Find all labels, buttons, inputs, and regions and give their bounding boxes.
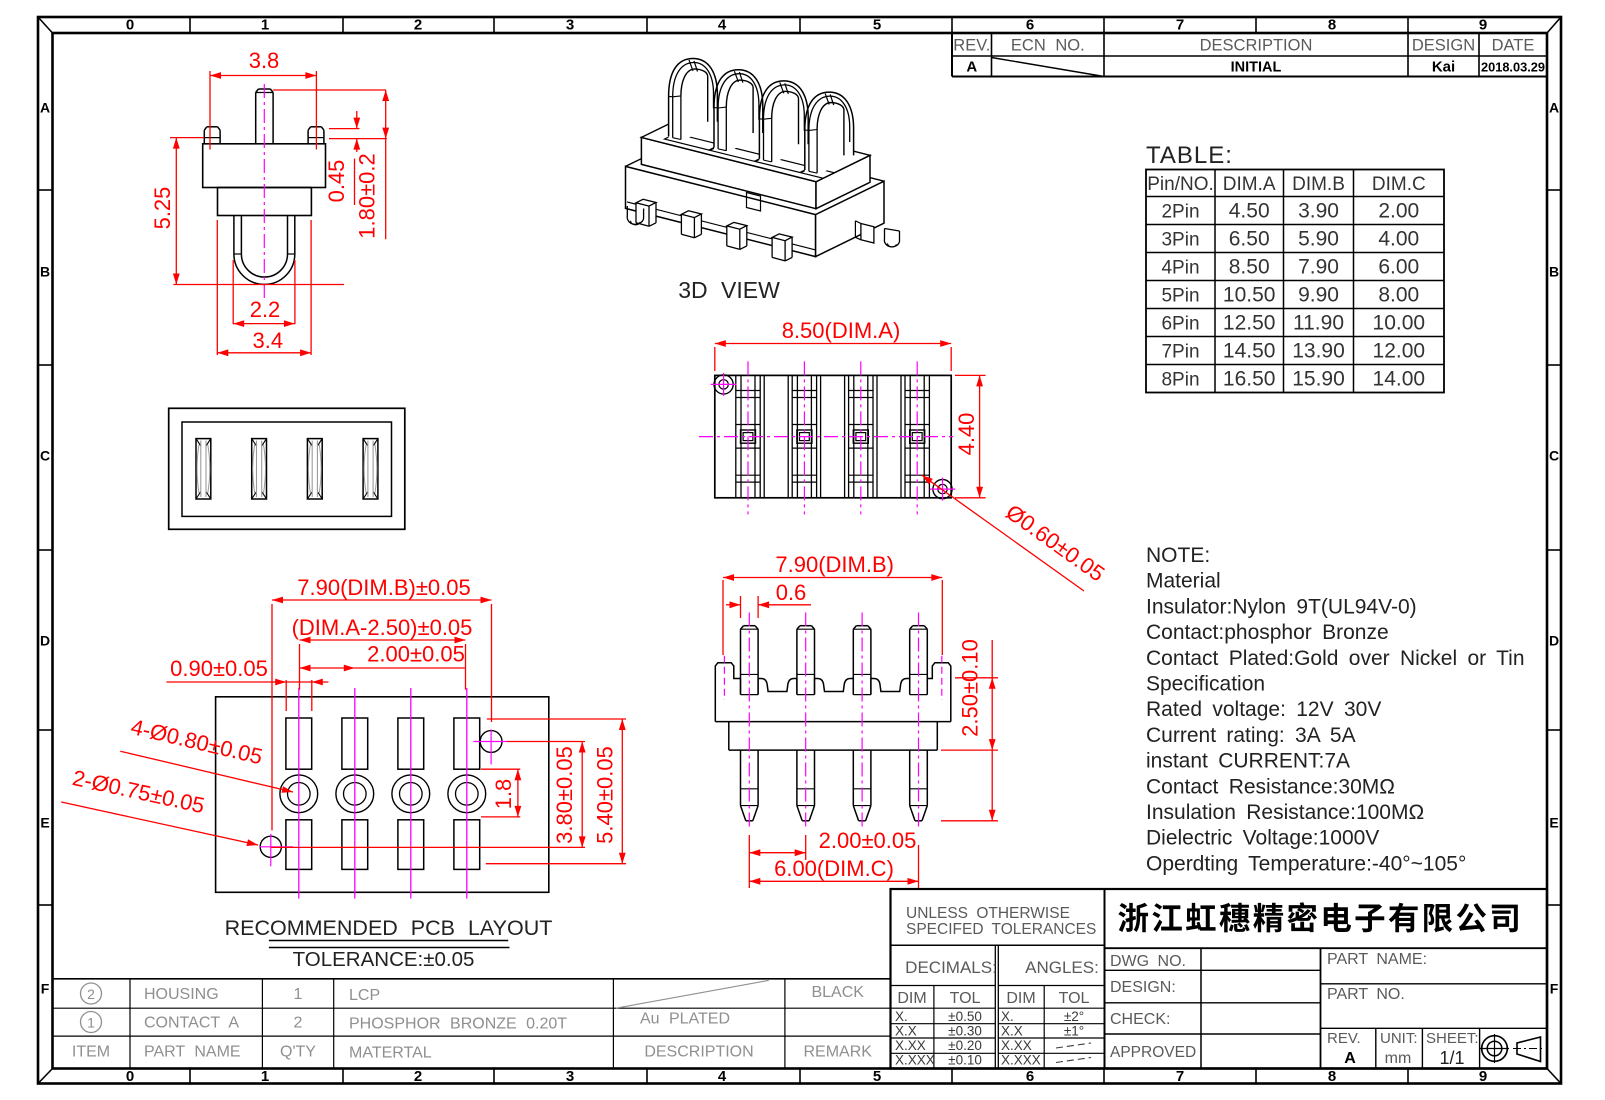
- svg-text:Current rating: 3A 5A: Current rating: 3A 5A: [1146, 724, 1356, 747]
- svg-text:14.50: 14.50: [1223, 340, 1276, 363]
- svg-text:8: 8: [1328, 17, 1336, 34]
- svg-text:SHEET:: SHEET:: [1426, 1030, 1479, 1047]
- svg-text:±0.30: ±0.30: [948, 1024, 982, 1039]
- svg-text:mm: mm: [1385, 1050, 1412, 1067]
- svg-text:TABLE:: TABLE:: [1146, 142, 1233, 169]
- svg-text:0: 0: [126, 17, 134, 34]
- svg-text:DECIMALS:: DECIMALS:: [905, 958, 997, 977]
- svg-text:3D VIEW: 3D VIEW: [678, 277, 780, 303]
- svg-text:PART NAME:: PART NAME:: [1327, 951, 1427, 968]
- svg-text:DIM.C: DIM.C: [1372, 174, 1426, 195]
- svg-text:8.50(DIM.A): 8.50(DIM.A): [782, 318, 901, 343]
- svg-text:Specification: Specification: [1146, 673, 1265, 696]
- svg-text:Kai: Kai: [1432, 59, 1455, 76]
- svg-text:C: C: [1549, 448, 1559, 464]
- svg-text:16.50: 16.50: [1223, 368, 1276, 391]
- svg-text:5.25: 5.25: [150, 187, 175, 230]
- svg-text:10.00: 10.00: [1373, 312, 1426, 335]
- svg-text:±0.20: ±0.20: [948, 1038, 982, 1053]
- svg-text:ECN NO.: ECN NO.: [1011, 37, 1085, 55]
- svg-text:5: 5: [873, 1068, 881, 1085]
- svg-text:DIM.A: DIM.A: [1223, 174, 1276, 195]
- svg-text:9: 9: [1479, 1068, 1487, 1085]
- svg-text:instant CURRENT:7A: instant CURRENT:7A: [1146, 750, 1350, 773]
- svg-text:7.90: 7.90: [1298, 256, 1339, 279]
- svg-text:2: 2: [87, 986, 95, 1002]
- svg-text:4: 4: [718, 1068, 727, 1085]
- svg-text:Rated voltage: 12V 30V: Rated voltage: 12V 30V: [1146, 698, 1381, 721]
- svg-text:0: 0: [126, 1068, 134, 1085]
- svg-text:1/1: 1/1: [1439, 1048, 1464, 1068]
- svg-text:2: 2: [414, 17, 422, 34]
- svg-text:15.90: 15.90: [1292, 368, 1345, 391]
- svg-text:F: F: [41, 981, 50, 997]
- svg-text:DIM: DIM: [897, 990, 926, 1007]
- svg-text:1.8: 1.8: [491, 779, 516, 810]
- svg-text:5.40±0.05: 5.40±0.05: [593, 746, 618, 844]
- svg-text:NOTE:: NOTE:: [1146, 544, 1210, 567]
- svg-text:X.X: X.X: [1001, 1024, 1023, 1039]
- svg-text:REMARK: REMARK: [803, 1044, 872, 1061]
- svg-text:BLACK: BLACK: [811, 984, 864, 1001]
- svg-text:8: 8: [1328, 1068, 1336, 1085]
- svg-text:±0.50: ±0.50: [948, 1009, 982, 1024]
- svg-text:B: B: [1549, 264, 1559, 280]
- svg-text:7: 7: [1176, 1068, 1184, 1085]
- svg-text:X.XXX: X.XXX: [895, 1053, 935, 1068]
- svg-text:1: 1: [294, 986, 303, 1003]
- svg-text:B: B: [40, 264, 50, 280]
- svg-text:INITIAL: INITIAL: [1231, 60, 1282, 76]
- svg-text:DIM.B: DIM.B: [1292, 174, 1345, 195]
- svg-text:X.X: X.X: [895, 1024, 917, 1039]
- svg-text:X.XX: X.XX: [895, 1038, 926, 1053]
- svg-text:12.50: 12.50: [1223, 312, 1276, 335]
- svg-text:Contact:phosphor Bronze: Contact:phosphor Bronze: [1146, 621, 1389, 644]
- svg-text:9: 9: [1479, 17, 1487, 34]
- svg-text:2.2: 2.2: [250, 297, 281, 322]
- svg-text:PART NO.: PART NO.: [1327, 986, 1405, 1003]
- svg-text:11.90: 11.90: [1293, 312, 1344, 335]
- svg-text:Au PLATED: Au PLATED: [640, 1011, 730, 1028]
- svg-text:PHOSPHOR BRONZE 0.20T: PHOSPHOR BRONZE 0.20T: [349, 1016, 567, 1033]
- svg-text:PART NAME: PART NAME: [144, 1044, 241, 1061]
- svg-text:TOL: TOL: [950, 990, 981, 1007]
- svg-text:SPECIFED TOLERANCES: SPECIFED TOLERANCES: [906, 921, 1096, 938]
- svg-text:DESCRIPTION: DESCRIPTION: [644, 1044, 753, 1061]
- svg-text:Dielectric Voltage:1000V: Dielectric Voltage:1000V: [1146, 827, 1379, 850]
- svg-text:(DIM.A-2.50)±0.05: (DIM.A-2.50)±0.05: [292, 615, 473, 640]
- svg-text:3.4: 3.4: [253, 328, 284, 353]
- svg-text:9.90: 9.90: [1298, 284, 1339, 307]
- svg-text:Operdting Temperature:-40°~10: Operdting Temperature:-40°~105°: [1146, 852, 1466, 875]
- svg-text:0.45: 0.45: [324, 160, 349, 203]
- svg-text:REV.: REV.: [953, 37, 990, 55]
- svg-text:X.: X.: [895, 1009, 908, 1024]
- svg-text:TOL: TOL: [1059, 990, 1090, 1007]
- svg-text:Insulator:Nylon 9T(UL94V-0): Insulator:Nylon 9T(UL94V-0): [1146, 595, 1417, 618]
- svg-text:CONTACT A: CONTACT A: [144, 1015, 239, 1032]
- svg-text:DESCRIPTION: DESCRIPTION: [1200, 37, 1313, 55]
- svg-text:Pin/NO.: Pin/NO.: [1147, 174, 1214, 195]
- svg-text:APPROVED: APPROVED: [1110, 1044, 1196, 1061]
- svg-text:2.00: 2.00: [1378, 200, 1419, 223]
- svg-text:3: 3: [566, 1068, 574, 1085]
- svg-text:HOUSING: HOUSING: [144, 986, 219, 1003]
- svg-text:1: 1: [261, 17, 269, 34]
- svg-text:D: D: [40, 633, 50, 649]
- svg-text:2018.03.29: 2018.03.29: [1481, 60, 1545, 75]
- svg-text:Contact Plated:Gold over Ni: Contact Plated:Gold over Nickel or Tin: [1146, 647, 1525, 670]
- svg-text:10.50: 10.50: [1223, 284, 1276, 307]
- svg-text:Insulation Resistance:100MΩ: Insulation Resistance:100MΩ: [1146, 801, 1424, 824]
- svg-text:Q'TY: Q'TY: [280, 1044, 316, 1061]
- svg-text:DIM: DIM: [1006, 990, 1035, 1007]
- svg-text:5: 5: [873, 17, 881, 34]
- svg-text:8.50: 8.50: [1229, 256, 1270, 279]
- svg-text:3: 3: [566, 17, 574, 34]
- svg-text:4.00: 4.00: [1378, 228, 1419, 251]
- svg-text:X.XXX: X.XXX: [1001, 1053, 1041, 1068]
- svg-text:5Pin: 5Pin: [1161, 286, 1199, 307]
- svg-text:4Pin: 4Pin: [1161, 258, 1199, 279]
- svg-text:E: E: [40, 815, 49, 831]
- svg-text:A: A: [966, 59, 977, 76]
- svg-text:3.90: 3.90: [1298, 200, 1339, 223]
- svg-text:6.00(DIM.C): 6.00(DIM.C): [774, 856, 894, 881]
- svg-text:2: 2: [414, 1068, 422, 1085]
- svg-text:E: E: [1549, 815, 1558, 831]
- svg-text:X.: X.: [1001, 1009, 1014, 1024]
- svg-text:D: D: [1549, 633, 1559, 649]
- svg-text:DESIGN: DESIGN: [1412, 37, 1475, 55]
- svg-text:1.80±0.2: 1.80±0.2: [355, 153, 380, 238]
- svg-text:2Pin: 2Pin: [1161, 202, 1199, 223]
- svg-text:A: A: [1549, 100, 1559, 116]
- svg-text:A: A: [40, 100, 50, 116]
- svg-text:7.90(DIM.B)±0.05: 7.90(DIM.B)±0.05: [297, 575, 470, 600]
- svg-text:TOLERANCE:±0.05: TOLERANCE:±0.05: [293, 948, 475, 971]
- svg-text:2: 2: [294, 1015, 303, 1032]
- svg-text:7Pin: 7Pin: [1161, 342, 1199, 363]
- svg-text:5.90: 5.90: [1298, 228, 1339, 251]
- svg-text:LCP: LCP: [349, 987, 380, 1004]
- svg-text:3.80±0.05: 3.80±0.05: [552, 746, 577, 844]
- svg-text:2.00±0.05: 2.00±0.05: [819, 828, 917, 853]
- svg-text:4: 4: [718, 17, 727, 34]
- svg-text:UNLESS OTHERWISE: UNLESS OTHERWISE: [906, 905, 1070, 922]
- svg-text:6: 6: [1026, 17, 1034, 34]
- svg-text:6: 6: [1026, 1068, 1034, 1085]
- svg-text:4.40: 4.40: [954, 413, 979, 456]
- svg-text:8.00: 8.00: [1378, 284, 1419, 307]
- svg-text:0.90±0.05: 0.90±0.05: [170, 656, 268, 681]
- svg-text:4.50: 4.50: [1229, 200, 1270, 223]
- svg-text:3.8: 3.8: [249, 48, 280, 73]
- svg-text:0.6: 0.6: [776, 580, 807, 605]
- svg-text:DESIGN:: DESIGN:: [1110, 979, 1176, 996]
- svg-text:3Pin: 3Pin: [1161, 230, 1199, 251]
- svg-text:2.50±0.10: 2.50±0.10: [958, 639, 983, 737]
- svg-text:MATERTAL: MATERTAL: [349, 1045, 432, 1062]
- svg-text:±0.10: ±0.10: [948, 1053, 982, 1068]
- svg-text:CHECK:: CHECK:: [1110, 1011, 1170, 1028]
- svg-text:REV.: REV.: [1327, 1030, 1361, 1047]
- svg-text:1: 1: [261, 1068, 269, 1085]
- svg-text:13.90: 13.90: [1292, 340, 1345, 363]
- svg-text:6.00: 6.00: [1378, 256, 1419, 279]
- svg-text:A: A: [1344, 1050, 1356, 1067]
- svg-text:RECOMMENDED PCB LAYOUT: RECOMMENDED PCB LAYOUT: [225, 916, 553, 940]
- svg-text:C: C: [40, 448, 50, 464]
- svg-text:Material: Material: [1146, 570, 1221, 593]
- svg-text:DATE: DATE: [1492, 37, 1535, 55]
- svg-text:14.00: 14.00: [1373, 368, 1426, 391]
- svg-text:7: 7: [1176, 17, 1184, 34]
- svg-text:F: F: [1550, 981, 1559, 997]
- svg-text:±1°: ±1°: [1064, 1024, 1084, 1039]
- svg-text:6Pin: 6Pin: [1161, 314, 1199, 335]
- svg-text:12.00: 12.00: [1373, 340, 1426, 363]
- svg-text:8Pin: 8Pin: [1161, 370, 1199, 391]
- svg-text:ITEM: ITEM: [72, 1044, 110, 1061]
- svg-text:6.50: 6.50: [1229, 228, 1270, 251]
- svg-text:7.90(DIM.B): 7.90(DIM.B): [775, 552, 894, 577]
- svg-text:UNIT:: UNIT:: [1380, 1030, 1418, 1047]
- svg-text:±2°: ±2°: [1064, 1009, 1084, 1024]
- svg-text:ANGLES:: ANGLES:: [1025, 958, 1099, 977]
- svg-text:Contact Resistance:30MΩ: Contact Resistance:30MΩ: [1146, 775, 1395, 798]
- svg-text:2.00±0.05: 2.00±0.05: [367, 642, 465, 667]
- svg-text:1: 1: [87, 1015, 95, 1031]
- svg-text:DWG NO.: DWG NO.: [1110, 953, 1186, 970]
- svg-text:X.XX: X.XX: [1001, 1038, 1032, 1053]
